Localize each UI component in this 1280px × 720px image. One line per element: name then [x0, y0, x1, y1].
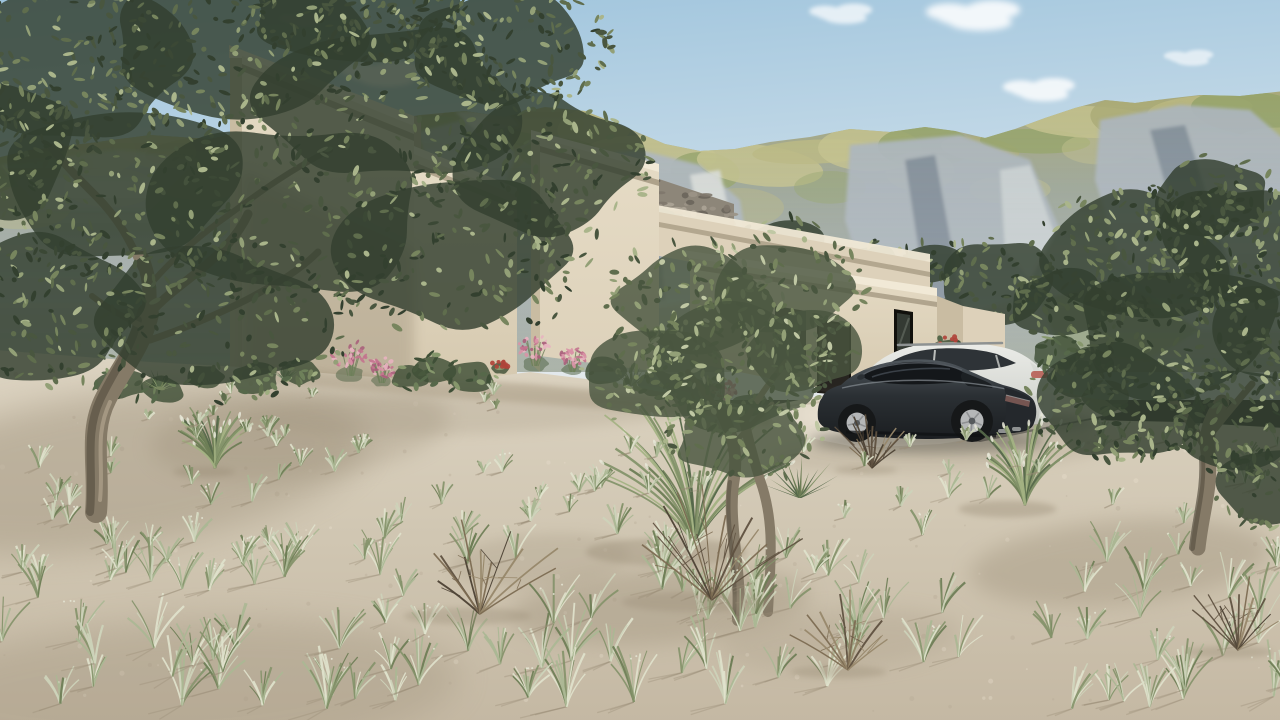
scene-canvas: [0, 0, 1280, 720]
architectural-rendering-image: [0, 0, 1280, 720]
sedan-exhaust: [1012, 427, 1021, 431]
